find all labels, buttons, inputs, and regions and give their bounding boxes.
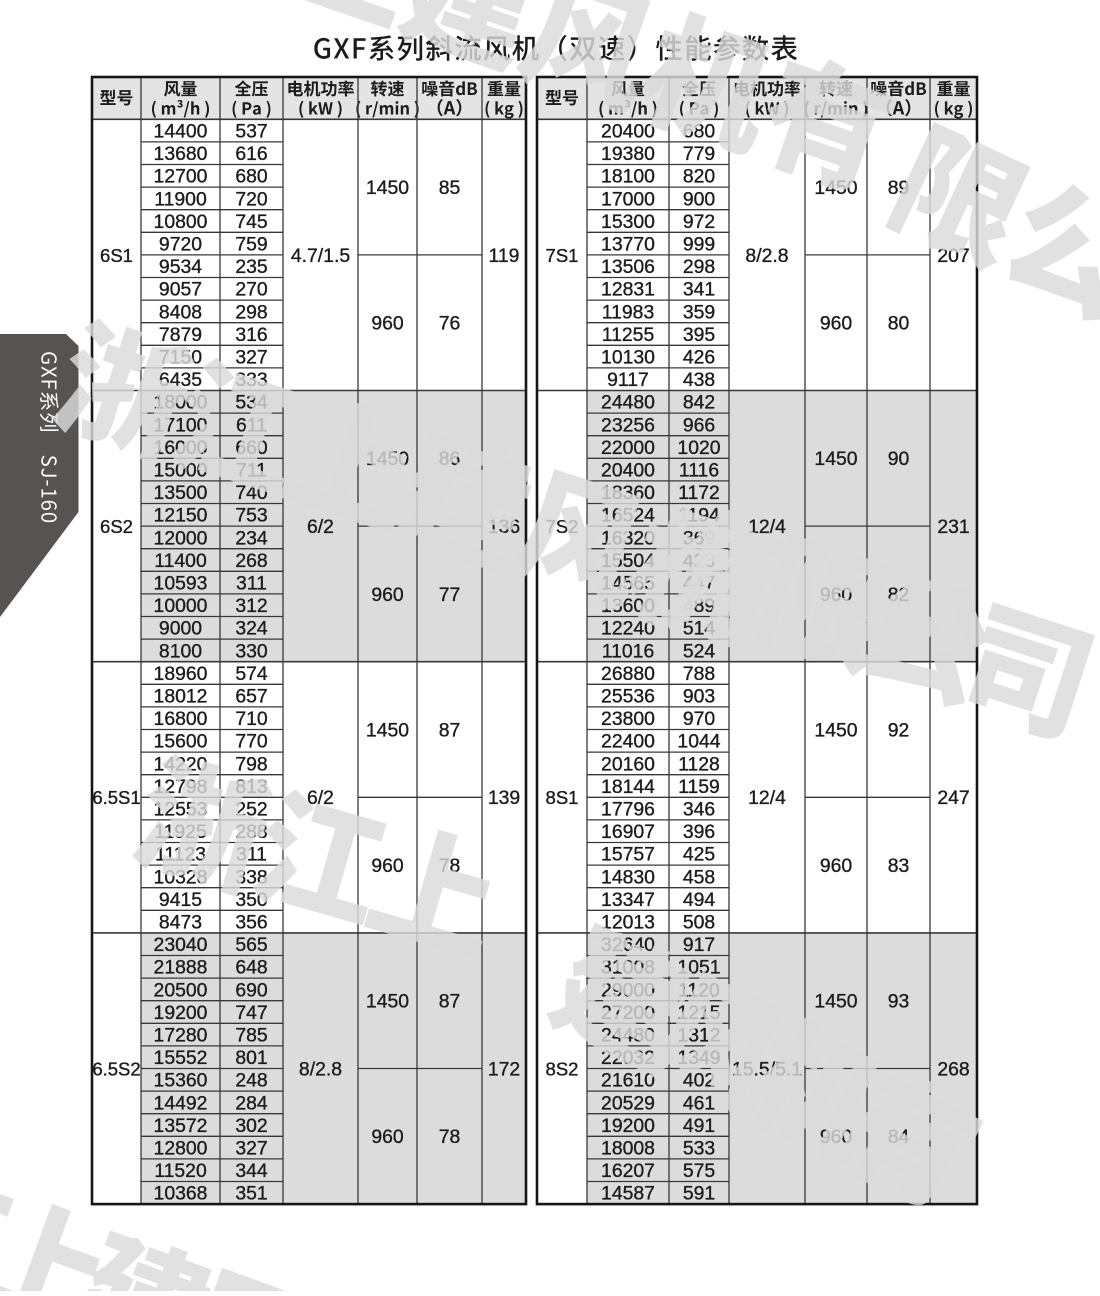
svg-text:341: 341 bbox=[683, 279, 715, 301]
svg-text:491: 491 bbox=[683, 1115, 715, 1137]
svg-text:537: 537 bbox=[235, 121, 267, 143]
svg-text:1450: 1450 bbox=[366, 991, 409, 1013]
svg-text:6S2: 6S2 bbox=[100, 516, 133, 537]
svg-text:917: 917 bbox=[683, 934, 715, 956]
svg-text:20500: 20500 bbox=[154, 979, 208, 1001]
svg-text:14492: 14492 bbox=[154, 1092, 208, 1114]
svg-text:8473: 8473 bbox=[159, 912, 202, 934]
svg-text:356: 356 bbox=[235, 912, 267, 934]
svg-text:83: 83 bbox=[888, 855, 910, 877]
svg-text:359: 359 bbox=[683, 301, 715, 323]
svg-text:494: 494 bbox=[683, 889, 716, 911]
svg-text:1128: 1128 bbox=[678, 753, 720, 775]
svg-text:16800: 16800 bbox=[154, 708, 208, 730]
svg-text:960: 960 bbox=[371, 313, 404, 335]
svg-text:18100: 18100 bbox=[601, 166, 655, 188]
svg-text:426: 426 bbox=[683, 347, 715, 369]
svg-text:8S1: 8S1 bbox=[546, 787, 579, 808]
svg-text:13506: 13506 bbox=[601, 256, 655, 278]
svg-text:119: 119 bbox=[489, 245, 520, 267]
svg-text:1450: 1450 bbox=[814, 448, 857, 470]
svg-text:19200: 19200 bbox=[601, 1115, 655, 1137]
svg-text:1116: 1116 bbox=[679, 460, 719, 482]
svg-text:80: 80 bbox=[888, 313, 910, 335]
svg-text:13347: 13347 bbox=[601, 889, 655, 911]
svg-text:20160: 20160 bbox=[601, 753, 655, 775]
svg-text:18144: 18144 bbox=[601, 776, 655, 798]
svg-text:351: 351 bbox=[235, 1183, 267, 1205]
svg-text:20400: 20400 bbox=[601, 121, 655, 143]
svg-text:15360: 15360 bbox=[154, 1070, 208, 1092]
svg-text:15552: 15552 bbox=[154, 1047, 208, 1069]
svg-text:7S1: 7S1 bbox=[546, 245, 579, 266]
svg-text:23040: 23040 bbox=[154, 934, 208, 956]
svg-text:710: 710 bbox=[235, 708, 268, 730]
svg-text:231: 231 bbox=[937, 516, 969, 538]
svg-text:396: 396 bbox=[683, 821, 715, 843]
svg-text:344: 344 bbox=[235, 1160, 268, 1182]
svg-text:268: 268 bbox=[235, 550, 267, 572]
svg-text:15300: 15300 bbox=[601, 211, 655, 233]
svg-text:747: 747 bbox=[235, 1002, 267, 1024]
svg-text:24480: 24480 bbox=[601, 392, 655, 414]
svg-text:6.5S2: 6.5S2 bbox=[92, 1058, 140, 1079]
svg-text:10800: 10800 bbox=[154, 211, 208, 233]
svg-text:298: 298 bbox=[683, 256, 715, 278]
svg-text:90: 90 bbox=[888, 448, 910, 470]
svg-text:9720: 9720 bbox=[159, 234, 202, 256]
svg-text:311: 311 bbox=[236, 573, 267, 595]
svg-text:11255: 11255 bbox=[602, 324, 654, 346]
svg-text:680: 680 bbox=[235, 166, 268, 188]
svg-text:9000: 9000 bbox=[159, 618, 202, 640]
svg-text:690: 690 bbox=[235, 979, 268, 1001]
svg-text:960: 960 bbox=[371, 584, 404, 606]
svg-text:324: 324 bbox=[235, 618, 268, 640]
svg-text:8S2: 8S2 bbox=[546, 1058, 579, 1079]
svg-text:16207: 16207 bbox=[601, 1160, 655, 1182]
svg-text:461: 461 bbox=[683, 1092, 715, 1114]
svg-text:302: 302 bbox=[235, 1115, 267, 1137]
svg-text:4.7/1.5: 4.7/1.5 bbox=[291, 245, 350, 267]
svg-text:23800: 23800 bbox=[601, 708, 655, 730]
svg-text:801: 801 bbox=[235, 1047, 267, 1069]
svg-text:745: 745 bbox=[235, 211, 267, 233]
svg-text:17000: 17000 bbox=[601, 188, 655, 210]
svg-text:312: 312 bbox=[235, 595, 267, 617]
svg-text:9415: 9415 bbox=[159, 889, 202, 911]
svg-text:21888: 21888 bbox=[154, 957, 208, 979]
svg-text:93: 93 bbox=[888, 991, 910, 1013]
svg-text:524: 524 bbox=[683, 640, 716, 662]
svg-text:9117: 9117 bbox=[607, 369, 649, 391]
svg-text:508: 508 bbox=[683, 912, 715, 934]
svg-text:8/2.8: 8/2.8 bbox=[745, 245, 788, 267]
svg-text:92: 92 bbox=[888, 719, 910, 741]
svg-text:139: 139 bbox=[488, 787, 520, 809]
svg-text:21610: 21610 bbox=[601, 1070, 655, 1092]
svg-text:14830: 14830 bbox=[601, 866, 655, 888]
svg-text:574: 574 bbox=[235, 663, 268, 685]
svg-text:18960: 18960 bbox=[154, 663, 208, 685]
svg-text:247: 247 bbox=[937, 787, 969, 809]
svg-text:1450: 1450 bbox=[814, 719, 857, 741]
svg-text:78: 78 bbox=[439, 1126, 461, 1148]
svg-text:11900: 11900 bbox=[154, 188, 207, 210]
svg-text:20400: 20400 bbox=[601, 460, 655, 482]
svg-text:999: 999 bbox=[683, 234, 715, 256]
svg-text:12700: 12700 bbox=[154, 166, 208, 188]
svg-text:6.5S1: 6.5S1 bbox=[92, 787, 140, 808]
svg-text:12800: 12800 bbox=[154, 1138, 208, 1160]
svg-text:12150: 12150 bbox=[154, 505, 208, 527]
svg-text:76: 76 bbox=[439, 313, 461, 335]
svg-text:960: 960 bbox=[371, 855, 404, 877]
svg-text:25536: 25536 bbox=[601, 686, 655, 708]
svg-text:533: 533 bbox=[683, 1138, 715, 1160]
svg-text:16907: 16907 bbox=[601, 821, 655, 843]
svg-text:6/2: 6/2 bbox=[307, 516, 334, 538]
svg-text:395: 395 bbox=[683, 324, 715, 346]
svg-text:6S1: 6S1 bbox=[100, 245, 133, 266]
svg-text:327: 327 bbox=[235, 347, 267, 369]
svg-text:11983: 11983 bbox=[602, 301, 654, 323]
svg-text:1044: 1044 bbox=[677, 731, 720, 753]
svg-text:13680: 13680 bbox=[154, 143, 208, 165]
svg-text:1020: 1020 bbox=[677, 437, 720, 459]
svg-text:10593: 10593 bbox=[154, 573, 208, 595]
svg-text:8100: 8100 bbox=[159, 640, 202, 662]
svg-text:1450: 1450 bbox=[814, 991, 857, 1013]
svg-text:785: 785 bbox=[235, 1025, 267, 1047]
svg-text:284: 284 bbox=[235, 1092, 268, 1114]
svg-text:17280: 17280 bbox=[154, 1025, 208, 1047]
svg-text:87: 87 bbox=[439, 991, 461, 1013]
svg-text:10000: 10000 bbox=[154, 595, 208, 617]
svg-text:9057: 9057 bbox=[159, 279, 202, 301]
svg-text:15600: 15600 bbox=[154, 731, 208, 753]
svg-text:10130: 10130 bbox=[601, 347, 655, 369]
svg-text:172: 172 bbox=[488, 1058, 520, 1080]
svg-text:234: 234 bbox=[235, 527, 268, 549]
svg-text:798: 798 bbox=[235, 753, 267, 775]
svg-text:960: 960 bbox=[820, 313, 853, 335]
svg-text:14400: 14400 bbox=[154, 121, 208, 143]
svg-text:903: 903 bbox=[683, 686, 715, 708]
svg-text:22000: 22000 bbox=[601, 437, 655, 459]
svg-text:15757: 15757 bbox=[601, 844, 655, 866]
svg-text:10368: 10368 bbox=[154, 1183, 208, 1205]
svg-text:7879: 7879 bbox=[159, 324, 202, 346]
svg-text:438: 438 bbox=[683, 369, 715, 391]
svg-text:22400: 22400 bbox=[601, 731, 655, 753]
svg-text:960: 960 bbox=[371, 1126, 404, 1148]
svg-text:11520: 11520 bbox=[154, 1160, 207, 1182]
svg-text:12/4: 12/4 bbox=[748, 787, 786, 809]
svg-text:12831: 12831 bbox=[601, 279, 655, 301]
svg-text:13500: 13500 bbox=[154, 482, 208, 504]
svg-text:575: 575 bbox=[683, 1160, 715, 1182]
svg-text:425: 425 bbox=[683, 844, 715, 866]
svg-text:19200: 19200 bbox=[154, 1002, 208, 1024]
svg-text:87: 87 bbox=[439, 719, 461, 741]
svg-text:270: 270 bbox=[235, 279, 268, 301]
svg-text:842: 842 bbox=[683, 392, 715, 414]
svg-text:648: 648 bbox=[235, 957, 267, 979]
svg-text:900: 900 bbox=[683, 188, 716, 210]
svg-text:591: 591 bbox=[683, 1183, 715, 1205]
svg-text:11016: 11016 bbox=[602, 640, 654, 662]
svg-text:13572: 13572 bbox=[154, 1115, 208, 1137]
svg-text:327: 327 bbox=[235, 1138, 267, 1160]
svg-text:18008: 18008 bbox=[601, 1138, 655, 1160]
svg-text:12000: 12000 bbox=[154, 527, 208, 549]
svg-text:1450: 1450 bbox=[366, 719, 409, 741]
svg-text:330: 330 bbox=[235, 640, 268, 662]
svg-text:720: 720 bbox=[235, 188, 268, 210]
svg-text:85: 85 bbox=[439, 177, 461, 199]
svg-text:11400: 11400 bbox=[154, 550, 207, 572]
svg-text:966: 966 bbox=[683, 414, 715, 436]
svg-text:9534: 9534 bbox=[159, 256, 202, 278]
svg-text:17796: 17796 bbox=[601, 799, 655, 821]
svg-text:248: 248 bbox=[235, 1070, 267, 1092]
svg-text:316: 316 bbox=[235, 324, 267, 346]
svg-text:1159: 1159 bbox=[678, 776, 720, 798]
svg-text:23256: 23256 bbox=[601, 414, 655, 436]
svg-text:8408: 8408 bbox=[159, 301, 202, 323]
svg-text:235: 235 bbox=[235, 256, 267, 278]
svg-text:458: 458 bbox=[683, 866, 715, 888]
svg-text:753: 753 bbox=[235, 505, 267, 527]
svg-text:298: 298 bbox=[235, 301, 267, 323]
svg-text:20529: 20529 bbox=[601, 1092, 655, 1114]
svg-text:26880: 26880 bbox=[601, 663, 655, 685]
svg-text:8/2.8: 8/2.8 bbox=[299, 1058, 342, 1080]
svg-text:970: 970 bbox=[683, 708, 716, 730]
svg-text:1172: 1172 bbox=[678, 482, 720, 504]
svg-text:565: 565 bbox=[235, 934, 267, 956]
svg-text:972: 972 bbox=[683, 211, 715, 233]
svg-text:779: 779 bbox=[683, 143, 715, 165]
svg-text:1450: 1450 bbox=[366, 177, 409, 199]
svg-text:18012: 18012 bbox=[154, 686, 208, 708]
svg-text:19380: 19380 bbox=[601, 143, 655, 165]
svg-text:13770: 13770 bbox=[601, 234, 655, 256]
svg-text:820: 820 bbox=[683, 166, 716, 188]
svg-text:960: 960 bbox=[820, 855, 853, 877]
svg-text:77: 77 bbox=[439, 584, 461, 606]
svg-text:788: 788 bbox=[683, 663, 715, 685]
svg-text:759: 759 bbox=[235, 234, 267, 256]
svg-text:657: 657 bbox=[235, 686, 267, 708]
svg-text:14587: 14587 bbox=[601, 1183, 655, 1205]
svg-text:346: 346 bbox=[683, 799, 715, 821]
svg-text:770: 770 bbox=[235, 731, 268, 753]
svg-text:616: 616 bbox=[235, 143, 267, 165]
svg-text:268: 268 bbox=[937, 1058, 969, 1080]
